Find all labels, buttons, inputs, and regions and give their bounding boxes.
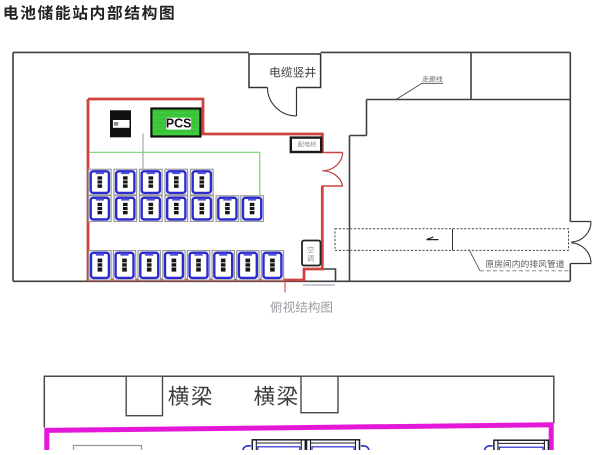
svg-text:PCS: PCS — [166, 117, 192, 131]
